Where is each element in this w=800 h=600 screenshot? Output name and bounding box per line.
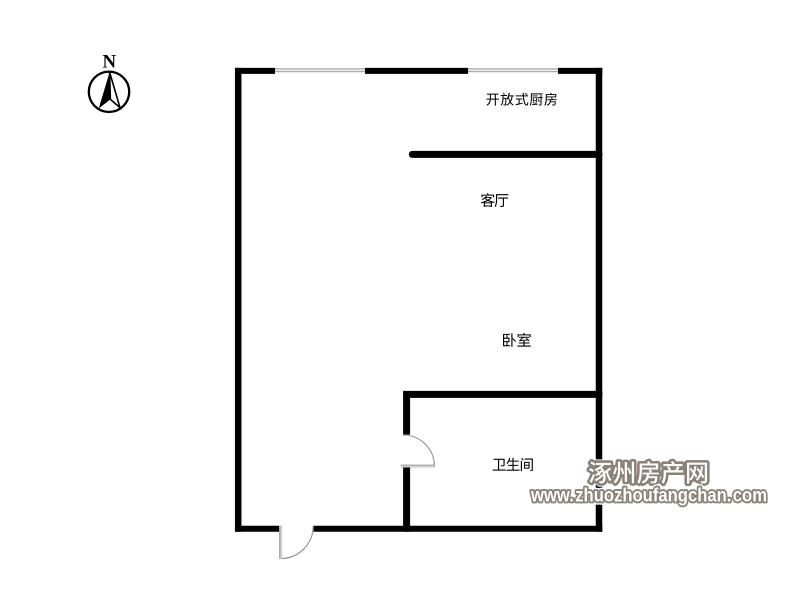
svg-text:N: N <box>103 52 117 72</box>
svg-text:www. zhuozhoufangchan. com: www. zhuozhoufangchan. com <box>530 485 767 507</box>
